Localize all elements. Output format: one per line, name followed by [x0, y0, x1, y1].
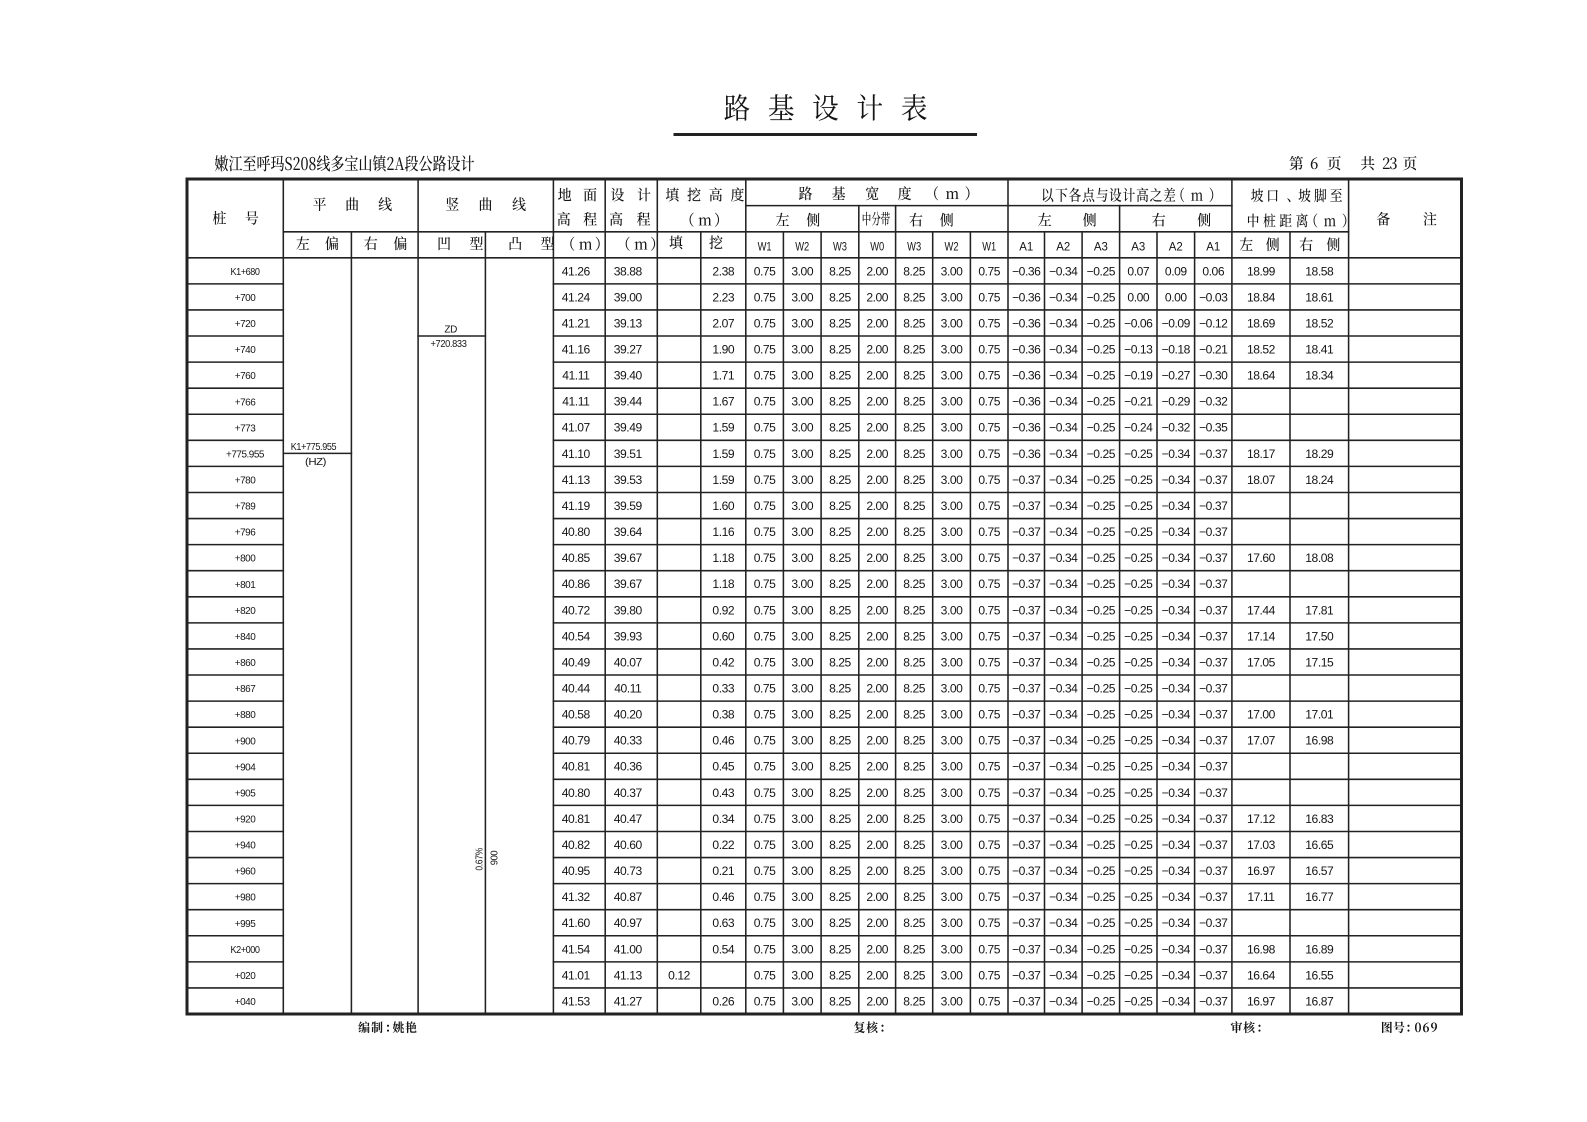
svg-text:16.89: 16.89: [1305, 942, 1334, 956]
svg-text:−0.25: −0.25: [1087, 629, 1116, 643]
svg-text:3.00: 3.00: [791, 473, 813, 487]
svg-text:−0.30: −0.30: [1199, 369, 1228, 383]
svg-text:0.75: 0.75: [754, 290, 776, 304]
svg-text:−0.34: −0.34: [1049, 864, 1078, 878]
svg-text:17.44: 17.44: [1247, 603, 1276, 617]
svg-text:2.00: 2.00: [866, 369, 888, 383]
svg-text:3.00: 3.00: [941, 734, 963, 748]
svg-text:8.25: 8.25: [829, 603, 851, 617]
svg-text:2.00: 2.00: [866, 316, 888, 330]
svg-text:18.58: 18.58: [1305, 264, 1334, 278]
svg-text:38.88: 38.88: [614, 264, 643, 278]
svg-text:−0.37: −0.37: [1199, 890, 1228, 904]
svg-text:−0.36: −0.36: [1012, 369, 1041, 383]
svg-text:−0.34: −0.34: [1049, 838, 1078, 852]
svg-text:3.00: 3.00: [791, 786, 813, 800]
svg-text:−0.34: −0.34: [1049, 473, 1078, 487]
svg-text:8.25: 8.25: [829, 968, 851, 982]
svg-text:8.25: 8.25: [903, 655, 925, 669]
svg-text:41.27: 41.27: [614, 994, 643, 1008]
svg-text:−0.34: −0.34: [1162, 525, 1191, 539]
svg-text:2.00: 2.00: [866, 577, 888, 591]
svg-text:0.75: 0.75: [754, 734, 776, 748]
svg-text:−0.34: −0.34: [1049, 447, 1078, 461]
svg-text:−0.25: −0.25: [1124, 838, 1153, 852]
svg-text:2.07: 2.07: [712, 316, 734, 330]
svg-text:18.52: 18.52: [1247, 343, 1276, 357]
svg-text:2.38: 2.38: [712, 264, 734, 278]
svg-text:8.25: 8.25: [829, 499, 851, 513]
svg-text:A3: A3: [1131, 239, 1145, 253]
svg-text:41.11: 41.11: [562, 369, 590, 383]
svg-text:0.75: 0.75: [978, 786, 1000, 800]
svg-text:40.47: 40.47: [614, 812, 643, 826]
svg-text:−0.34: −0.34: [1049, 343, 1078, 357]
svg-text:3.00: 3.00: [941, 421, 963, 435]
svg-text:16.87: 16.87: [1305, 994, 1334, 1008]
svg-text:0.75: 0.75: [978, 264, 1000, 278]
svg-text:−0.34: −0.34: [1162, 734, 1191, 748]
svg-text:2.00: 2.00: [866, 942, 888, 956]
svg-text:8.25: 8.25: [903, 473, 925, 487]
svg-text:17.12: 17.12: [1247, 812, 1276, 826]
svg-text:8.25: 8.25: [903, 864, 925, 878]
svg-text:8.25: 8.25: [903, 760, 925, 774]
svg-text:2.23: 2.23: [712, 290, 734, 304]
svg-text:−0.36: −0.36: [1012, 421, 1041, 435]
svg-text:0.75: 0.75: [978, 369, 1000, 383]
svg-text:−0.37: −0.37: [1012, 525, 1041, 539]
svg-text:−0.25: −0.25: [1124, 499, 1153, 513]
svg-text:−0.12: −0.12: [1199, 316, 1228, 330]
svg-text:−0.34: −0.34: [1049, 812, 1078, 826]
svg-text:−0.37: −0.37: [1199, 968, 1228, 982]
svg-text:8.25: 8.25: [903, 786, 925, 800]
svg-text:40.11: 40.11: [614, 682, 642, 696]
svg-text:−0.34: −0.34: [1162, 447, 1191, 461]
svg-text:−0.34: −0.34: [1049, 708, 1078, 722]
svg-text:39.64: 39.64: [614, 525, 643, 539]
svg-text:−0.09: −0.09: [1162, 316, 1191, 330]
svg-text:−0.37: −0.37: [1012, 734, 1041, 748]
svg-text:0.75: 0.75: [978, 942, 1000, 956]
svg-text:41.13: 41.13: [614, 968, 643, 982]
svg-text:−0.25: −0.25: [1087, 760, 1116, 774]
svg-text:2.00: 2.00: [866, 968, 888, 982]
svg-text:18.41: 18.41: [1305, 343, 1334, 357]
svg-text:−0.37: −0.37: [1012, 655, 1041, 669]
svg-text:−0.25: −0.25: [1087, 786, 1116, 800]
svg-text:K1+775.955: K1+775.955: [291, 442, 337, 453]
svg-text:0.22: 0.22: [712, 838, 734, 852]
svg-text:2.00: 2.00: [866, 890, 888, 904]
svg-text:39.13: 39.13: [614, 316, 643, 330]
svg-text:40.60: 40.60: [614, 838, 643, 852]
svg-text:−0.34: −0.34: [1049, 421, 1078, 435]
svg-text:−0.34: −0.34: [1049, 629, 1078, 643]
svg-text:18.24: 18.24: [1305, 473, 1334, 487]
svg-text:+720: +720: [235, 319, 256, 330]
svg-text:2.00: 2.00: [866, 499, 888, 513]
svg-text:8.25: 8.25: [903, 343, 925, 357]
svg-text:1.16: 1.16: [712, 525, 734, 539]
svg-text:+740: +740: [235, 345, 256, 356]
svg-text:2.00: 2.00: [866, 395, 888, 409]
svg-text:−0.34: −0.34: [1162, 890, 1191, 904]
svg-text:3.00: 3.00: [791, 343, 813, 357]
svg-text:2.00: 2.00: [866, 264, 888, 278]
svg-text:3.00: 3.00: [941, 655, 963, 669]
svg-text:0.75: 0.75: [754, 577, 776, 591]
svg-text:0.75: 0.75: [978, 655, 1000, 669]
svg-text:16.98: 16.98: [1305, 734, 1334, 748]
svg-text:−0.37: −0.37: [1012, 473, 1041, 487]
svg-text:0.75: 0.75: [754, 994, 776, 1008]
svg-text:41.10: 41.10: [562, 447, 591, 461]
svg-text:8.25: 8.25: [829, 421, 851, 435]
svg-text:8.25: 8.25: [903, 447, 925, 461]
svg-text:W2: W2: [795, 239, 809, 253]
svg-text:3.00: 3.00: [941, 942, 963, 956]
svg-text:0.75: 0.75: [754, 812, 776, 826]
svg-text:3.00: 3.00: [791, 682, 813, 696]
svg-text:0.75: 0.75: [754, 655, 776, 669]
svg-text:−0.25: −0.25: [1087, 734, 1116, 748]
svg-text:−0.25: −0.25: [1124, 760, 1153, 774]
svg-text:1.71: 1.71: [712, 369, 734, 383]
svg-text:8.25: 8.25: [829, 525, 851, 539]
svg-text:2.00: 2.00: [866, 525, 888, 539]
svg-text:2.00: 2.00: [866, 786, 888, 800]
svg-text:−0.34: −0.34: [1049, 968, 1078, 982]
svg-text:−0.25: −0.25: [1087, 838, 1116, 852]
svg-text:+867: +867: [235, 684, 256, 695]
svg-text:−0.37: −0.37: [1199, 655, 1228, 669]
svg-text:3.00: 3.00: [791, 577, 813, 591]
svg-text:8.25: 8.25: [829, 629, 851, 643]
svg-text:3.00: 3.00: [791, 655, 813, 669]
svg-text:0.75: 0.75: [978, 838, 1000, 852]
svg-text:17.60: 17.60: [1247, 551, 1276, 565]
svg-text:−0.37: −0.37: [1199, 682, 1228, 696]
svg-text:3.00: 3.00: [941, 812, 963, 826]
svg-text:−0.37: −0.37: [1199, 864, 1228, 878]
svg-text:−0.06: −0.06: [1124, 316, 1153, 330]
svg-text:−0.25: −0.25: [1087, 994, 1116, 1008]
svg-text:1.59: 1.59: [712, 447, 734, 461]
svg-text:18.52: 18.52: [1305, 316, 1334, 330]
svg-text:0.75: 0.75: [754, 916, 776, 930]
svg-text:8.25: 8.25: [829, 655, 851, 669]
svg-text:41.13: 41.13: [562, 473, 591, 487]
svg-text:3.00: 3.00: [941, 603, 963, 617]
svg-text:8.25: 8.25: [829, 812, 851, 826]
svg-text:40.54: 40.54: [562, 629, 591, 643]
svg-text:2.00: 2.00: [866, 629, 888, 643]
svg-text:3.00: 3.00: [941, 473, 963, 487]
svg-text:3.00: 3.00: [941, 499, 963, 513]
svg-text:0.54: 0.54: [712, 942, 734, 956]
svg-text:40.95: 40.95: [562, 864, 591, 878]
svg-text:0.75: 0.75: [754, 395, 776, 409]
svg-text:−0.35: −0.35: [1199, 421, 1228, 435]
svg-text:41.54: 41.54: [562, 942, 591, 956]
svg-text:3.00: 3.00: [791, 760, 813, 774]
svg-text:3.00: 3.00: [791, 447, 813, 461]
svg-text:17.00: 17.00: [1247, 708, 1276, 722]
svg-text:−0.25: −0.25: [1124, 551, 1153, 565]
svg-text:41.07: 41.07: [562, 421, 591, 435]
svg-text:40.33: 40.33: [614, 734, 643, 748]
svg-text:−0.25: −0.25: [1087, 812, 1116, 826]
svg-text:8.25: 8.25: [829, 316, 851, 330]
svg-text:−0.25: −0.25: [1124, 655, 1153, 669]
svg-text:0.75: 0.75: [754, 551, 776, 565]
svg-text:−0.37: −0.37: [1012, 499, 1041, 513]
svg-text:3.00: 3.00: [791, 603, 813, 617]
svg-text:8.25: 8.25: [903, 369, 925, 383]
svg-text:−0.25: −0.25: [1124, 682, 1153, 696]
svg-text:−0.25: −0.25: [1124, 994, 1153, 1008]
svg-text:−0.34: −0.34: [1162, 551, 1191, 565]
svg-text:3.00: 3.00: [941, 864, 963, 878]
svg-text:0.75: 0.75: [754, 786, 776, 800]
svg-text:−0.34: −0.34: [1162, 864, 1191, 878]
svg-text:−0.37: −0.37: [1199, 942, 1228, 956]
svg-text:0.46: 0.46: [712, 890, 734, 904]
svg-text:3.00: 3.00: [791, 629, 813, 643]
svg-text:−0.34: −0.34: [1049, 682, 1078, 696]
svg-text:−0.37: −0.37: [1012, 629, 1041, 643]
svg-text:−0.34: −0.34: [1049, 760, 1078, 774]
svg-text:18.34: 18.34: [1305, 369, 1334, 383]
svg-text:−0.37: −0.37: [1199, 473, 1228, 487]
svg-text:0.75: 0.75: [754, 525, 776, 539]
svg-text:900: 900: [489, 850, 500, 865]
svg-text:8.25: 8.25: [829, 682, 851, 696]
svg-text:18.29: 18.29: [1305, 447, 1334, 461]
svg-text:3.00: 3.00: [791, 499, 813, 513]
svg-text:17.50: 17.50: [1305, 629, 1334, 643]
svg-text:−0.21: −0.21: [1124, 395, 1153, 409]
svg-text:40.85: 40.85: [562, 551, 591, 565]
svg-text:−0.32: −0.32: [1162, 421, 1191, 435]
svg-text:2.00: 2.00: [866, 421, 888, 435]
svg-text:−0.25: −0.25: [1087, 421, 1116, 435]
svg-text:8.25: 8.25: [903, 942, 925, 956]
svg-text:−0.34: −0.34: [1162, 812, 1191, 826]
svg-text:8.25: 8.25: [829, 551, 851, 565]
svg-text:−0.25: −0.25: [1087, 551, 1116, 565]
svg-text:16.97: 16.97: [1247, 864, 1276, 878]
svg-text:8.25: 8.25: [903, 890, 925, 904]
svg-text:−0.25: −0.25: [1087, 603, 1116, 617]
svg-text:−0.25: −0.25: [1124, 473, 1153, 487]
svg-text:3.00: 3.00: [791, 890, 813, 904]
svg-text:−0.34: −0.34: [1049, 551, 1078, 565]
svg-text:−0.34: −0.34: [1049, 786, 1078, 800]
svg-text:0.75: 0.75: [754, 708, 776, 722]
svg-text:−0.37: −0.37: [1012, 994, 1041, 1008]
svg-text:+801: +801: [235, 580, 256, 591]
svg-text:3.00: 3.00: [791, 395, 813, 409]
svg-text:−0.37: −0.37: [1199, 786, 1228, 800]
svg-text:+940: +940: [235, 841, 256, 852]
svg-text:K2+000: K2+000: [231, 945, 261, 956]
svg-text:0.75: 0.75: [978, 421, 1000, 435]
svg-text:18.61: 18.61: [1305, 290, 1334, 304]
svg-text:0.75: 0.75: [978, 916, 1000, 930]
svg-text:−0.34: −0.34: [1162, 838, 1191, 852]
svg-text:8.25: 8.25: [903, 629, 925, 643]
svg-text:0.75: 0.75: [978, 994, 1000, 1008]
svg-text:−0.37: −0.37: [1199, 734, 1228, 748]
svg-text:39.40: 39.40: [614, 369, 643, 383]
svg-text:W0: W0: [870, 239, 884, 253]
svg-text:3.00: 3.00: [941, 343, 963, 357]
svg-text:+789: +789: [235, 502, 256, 513]
svg-text:−0.36: −0.36: [1012, 447, 1041, 461]
svg-text:0.34: 0.34: [712, 812, 734, 826]
svg-text:−0.34: −0.34: [1049, 734, 1078, 748]
svg-text:8.25: 8.25: [829, 343, 851, 357]
svg-text:+720.833: +720.833: [431, 339, 468, 350]
svg-text:0.75: 0.75: [978, 603, 1000, 617]
svg-text:17.14: 17.14: [1247, 629, 1276, 643]
svg-text:0.75: 0.75: [754, 264, 776, 278]
svg-text:W1: W1: [982, 239, 996, 253]
svg-text:8.25: 8.25: [829, 290, 851, 304]
svg-text:17.01: 17.01: [1305, 708, 1334, 722]
svg-text:3.00: 3.00: [941, 369, 963, 383]
svg-text:−0.37: −0.37: [1199, 551, 1228, 565]
svg-text:−0.25: −0.25: [1124, 734, 1153, 748]
svg-text:−0.24: −0.24: [1124, 421, 1153, 435]
svg-text:41.00: 41.00: [614, 942, 643, 956]
svg-text:0.75: 0.75: [754, 447, 776, 461]
svg-text:3.00: 3.00: [791, 942, 813, 956]
svg-text:40.20: 40.20: [614, 708, 643, 722]
svg-text:41.32: 41.32: [562, 890, 591, 904]
svg-text:8.25: 8.25: [903, 708, 925, 722]
svg-text:W3: W3: [907, 239, 921, 253]
svg-text:−0.25: −0.25: [1087, 447, 1116, 461]
svg-text:16.98: 16.98: [1247, 942, 1276, 956]
svg-text:W2: W2: [945, 239, 959, 253]
svg-text:3.00: 3.00: [791, 369, 813, 383]
svg-text:40.81: 40.81: [562, 760, 591, 774]
svg-text:3.00: 3.00: [941, 786, 963, 800]
svg-text:17.81: 17.81: [1305, 603, 1334, 617]
svg-text:18.69: 18.69: [1247, 316, 1276, 330]
svg-text:39.80: 39.80: [614, 603, 643, 617]
svg-text:0.75: 0.75: [978, 682, 1000, 696]
svg-text:+820: +820: [235, 606, 256, 617]
svg-text:−0.25: −0.25: [1087, 499, 1116, 513]
svg-text:−0.34: −0.34: [1049, 916, 1078, 930]
svg-text:18.17: 18.17: [1247, 447, 1276, 461]
svg-text:0.12: 0.12: [668, 968, 690, 982]
svg-text:−0.34: −0.34: [1162, 786, 1191, 800]
svg-text:−0.34: −0.34: [1049, 499, 1078, 513]
svg-text:3.00: 3.00: [791, 864, 813, 878]
svg-text:40.80: 40.80: [562, 786, 591, 800]
svg-text:3.00: 3.00: [941, 708, 963, 722]
svg-text:39.93: 39.93: [614, 629, 643, 643]
svg-text:0.75: 0.75: [754, 942, 776, 956]
svg-text:−0.25: −0.25: [1124, 942, 1153, 956]
svg-text:−0.25: −0.25: [1124, 447, 1153, 461]
svg-text:0.75: 0.75: [754, 499, 776, 513]
svg-text:8.25: 8.25: [903, 577, 925, 591]
svg-text:−0.21: −0.21: [1199, 343, 1228, 357]
svg-text:3.00: 3.00: [791, 838, 813, 852]
svg-text:3.00: 3.00: [791, 421, 813, 435]
svg-text:8.25: 8.25: [829, 264, 851, 278]
svg-text:−0.37: −0.37: [1199, 499, 1228, 513]
svg-text:−0.25: −0.25: [1087, 316, 1116, 330]
svg-text:−0.37: −0.37: [1199, 525, 1228, 539]
svg-text:8.25: 8.25: [829, 916, 851, 930]
svg-text:0.75: 0.75: [754, 890, 776, 904]
svg-text:−0.34: −0.34: [1162, 916, 1191, 930]
svg-text:0.45: 0.45: [712, 760, 734, 774]
svg-text:17.05: 17.05: [1247, 655, 1276, 669]
svg-text:0.67%: 0.67%: [475, 848, 486, 871]
svg-text:8.25: 8.25: [903, 812, 925, 826]
svg-text:ZD: ZD: [444, 324, 457, 335]
svg-text:0.75: 0.75: [978, 734, 1000, 748]
svg-text:3.00: 3.00: [941, 838, 963, 852]
svg-text:40.72: 40.72: [562, 603, 591, 617]
svg-text:40.58: 40.58: [562, 708, 591, 722]
svg-text:0.75: 0.75: [978, 708, 1000, 722]
svg-text:0.06: 0.06: [1202, 264, 1224, 278]
svg-text:2.00: 2.00: [866, 864, 888, 878]
svg-text:3.00: 3.00: [941, 290, 963, 304]
svg-text:−0.27: −0.27: [1162, 369, 1191, 383]
svg-text:1.60: 1.60: [712, 499, 734, 513]
svg-text:3.00: 3.00: [791, 734, 813, 748]
svg-text:A1: A1: [1206, 239, 1220, 253]
svg-text:−0.13: −0.13: [1124, 343, 1153, 357]
svg-text:3.00: 3.00: [791, 812, 813, 826]
svg-text:−0.37: −0.37: [1012, 838, 1041, 852]
svg-text:40.37: 40.37: [614, 786, 643, 800]
svg-text:A2: A2: [1056, 239, 1070, 253]
svg-text:−0.34: −0.34: [1162, 655, 1191, 669]
svg-text:0.75: 0.75: [754, 760, 776, 774]
svg-text:16.57: 16.57: [1305, 864, 1334, 878]
svg-text:−0.36: −0.36: [1012, 290, 1041, 304]
svg-text:0.75: 0.75: [978, 525, 1000, 539]
svg-text:39.27: 39.27: [614, 343, 643, 357]
svg-text:3.00: 3.00: [791, 916, 813, 930]
svg-text:−0.37: −0.37: [1199, 838, 1228, 852]
svg-text:−0.37: −0.37: [1012, 786, 1041, 800]
svg-text:0.75: 0.75: [754, 864, 776, 878]
svg-text:−0.25: −0.25: [1124, 603, 1153, 617]
svg-text:16.55: 16.55: [1305, 968, 1334, 982]
svg-text:−0.36: −0.36: [1012, 343, 1041, 357]
svg-text:8.25: 8.25: [829, 942, 851, 956]
svg-text:41.24: 41.24: [562, 290, 591, 304]
svg-text:0.75: 0.75: [754, 838, 776, 852]
svg-text:18.99: 18.99: [1247, 264, 1276, 278]
svg-text:−0.37: −0.37: [1199, 603, 1228, 617]
svg-text:3.00: 3.00: [791, 316, 813, 330]
svg-text:2.00: 2.00: [866, 734, 888, 748]
